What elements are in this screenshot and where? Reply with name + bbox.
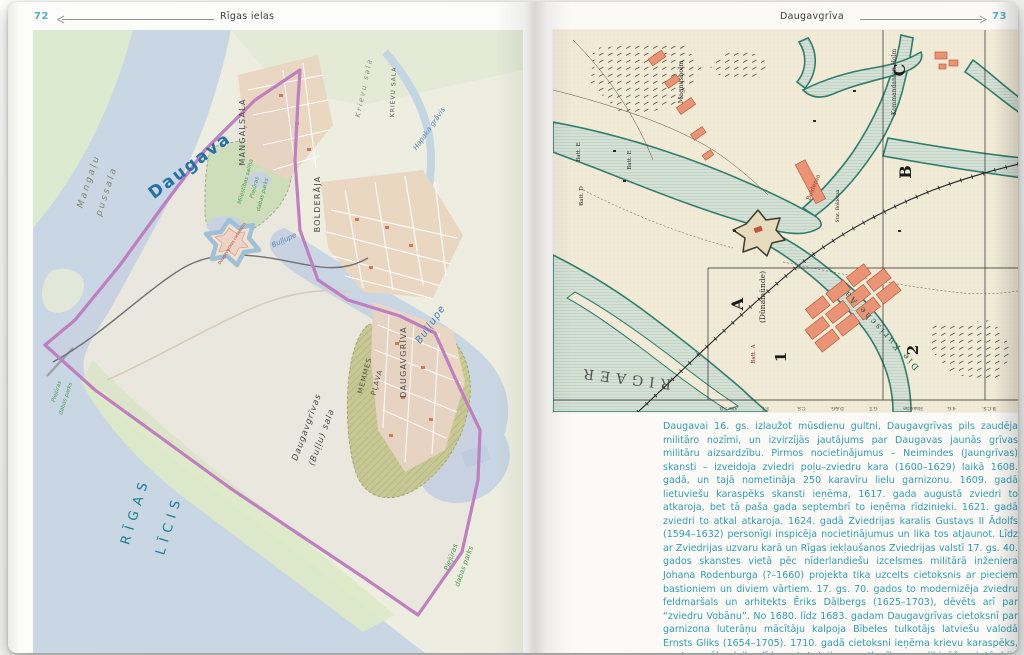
legend-item: F.T. (761, 405, 769, 411)
page-number-left: 72 (34, 11, 49, 22)
header-arrow-left-icon (56, 15, 214, 24)
header-arrow-right-icon (860, 15, 988, 24)
page-left: 72 Rīgas ielas (8, 2, 530, 653)
grid-letter-a: A (728, 297, 747, 311)
label-batt-e2: Batt. E (627, 150, 633, 169)
label-batt-a: Batt. A (751, 343, 757, 363)
legend-item: B.C.S. (982, 405, 996, 411)
label-dunamunde: (Dünamünde) (758, 271, 767, 323)
page-right: Daugavgrīva 73 (530, 2, 1018, 653)
grid-letter-c: C (890, 64, 909, 77)
book-spread: 72 Rīgas ielas (8, 2, 1018, 653)
page-number-right: 73 (992, 11, 1007, 22)
grid-number-1: 1 (772, 352, 790, 362)
legend-item: G.T. (868, 405, 877, 411)
label-kommandanten-holm: Kommandanten-Holm (891, 49, 898, 116)
legend-item: Haasche (903, 405, 923, 411)
legend-item: Alte F.B. (718, 405, 739, 411)
photo-background: 72 Rīgas ielas (0, 0, 1024, 655)
body-paragraph: Daugavai 16. gs. izlaužot mūsdienu gultn… (663, 420, 1018, 653)
label-stat-bolderaa: Stat. Bolderaa (835, 189, 841, 222)
label-bolderaja: BOLDERĀJA (312, 176, 322, 233)
page-title-left: Rīgas ielas (220, 11, 274, 22)
label-mangalsala: MANGAĻSALA (238, 98, 248, 165)
label-batt-d: Batt. D (579, 186, 585, 206)
page-title-right: Daugavgrīva (780, 11, 844, 22)
left-map-modern: Mangaļu pussala MANGAĻSALA Krievu sala K… (33, 30, 523, 653)
grid-number-2: 2 (904, 345, 922, 355)
legend-item: D.&G. (830, 405, 844, 411)
marsh-n (710, 51, 766, 79)
label-magnusholm: Magnusholm (677, 61, 685, 104)
right-map-historical: Magnusholm Kommandanten-Holm (Dünamünde)… (553, 30, 1018, 412)
label-daugavgriva: DAUGAVGRĪVA (398, 326, 408, 398)
label-batt-e1: Batt. E (576, 142, 582, 161)
grid-letter-b: B (896, 165, 915, 179)
legend-item: 4.G. (946, 405, 956, 411)
legend-item: C.S. (796, 405, 806, 411)
